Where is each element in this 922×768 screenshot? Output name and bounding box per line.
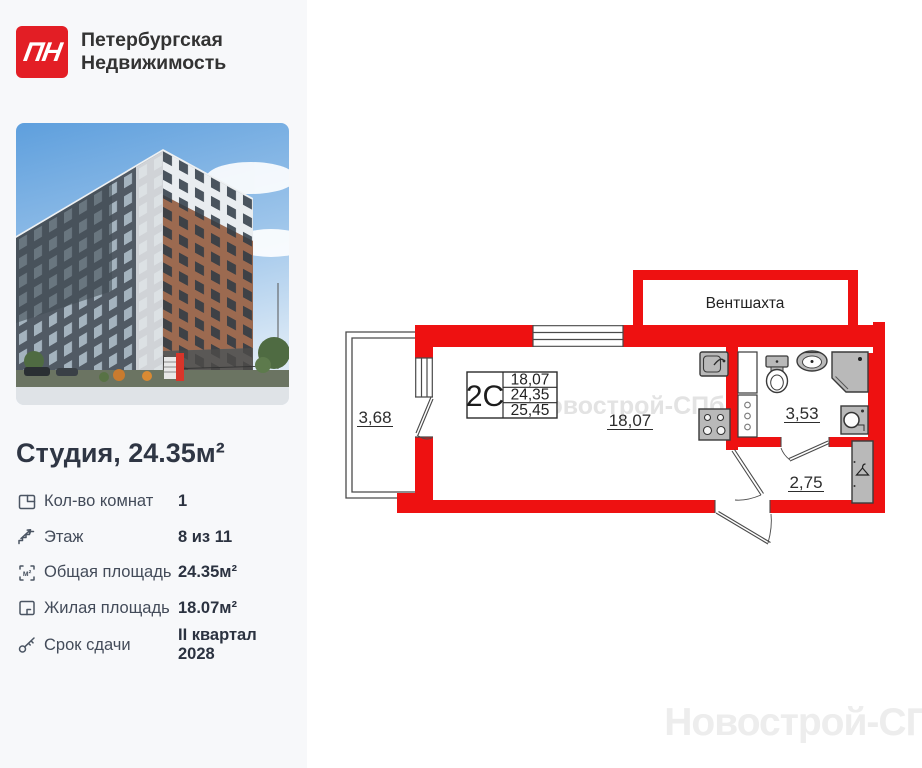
wardrobe-fixture bbox=[852, 441, 873, 503]
shower-fixture bbox=[832, 352, 868, 392]
brand-name-line1: Петербургская bbox=[81, 29, 226, 52]
spec-row-floor: Этаж 8 из 11 bbox=[16, 520, 294, 556]
brand-logo[interactable]: ПН Петербургская Недвижимость bbox=[16, 26, 226, 78]
spec-list: Кол-во комнат 1 Этаж 8 из 11 м² Общая пл… bbox=[16, 484, 294, 662]
listing-title: Студия, 24.35м² bbox=[16, 438, 225, 469]
unit-code: 2С bbox=[466, 380, 504, 413]
bathroom-door bbox=[781, 437, 829, 461]
spec-label: Общая площадь bbox=[44, 563, 178, 582]
spec-label: Этаж bbox=[44, 528, 178, 547]
toilet-fixture bbox=[766, 356, 788, 393]
spec-value: 18.07м² bbox=[178, 599, 294, 618]
spec-label: Кол-во комнат bbox=[44, 492, 178, 511]
spec-row-total-area: м² Общая площадь 24.35м² bbox=[16, 555, 294, 591]
handover-key-icon bbox=[16, 634, 38, 656]
floor-icon bbox=[16, 526, 38, 548]
building-illustration bbox=[16, 123, 289, 405]
brand-name-line2: Недвижимость bbox=[81, 52, 226, 75]
kitchen-sink-fixture bbox=[700, 352, 728, 376]
brand-name: Петербургская Недвижимость bbox=[81, 29, 226, 75]
window-top bbox=[533, 325, 623, 347]
spec-row-rooms: Кол-во комнат 1 bbox=[16, 484, 294, 520]
stat-full-area: 25,45 bbox=[511, 402, 550, 419]
living-area-label: 18,07 bbox=[609, 411, 652, 430]
unit-stat-table: 2С 18,07 24,35 25,45 bbox=[466, 372, 557, 420]
duct-shaft bbox=[738, 352, 757, 437]
spec-value: II квартал 2028 bbox=[178, 626, 294, 664]
spec-row-handover: Срок сдачи II квартал 2028 bbox=[16, 626, 294, 662]
stove-fixture bbox=[699, 409, 730, 440]
spec-label: Срок сдачи bbox=[44, 636, 178, 655]
total-area-icon: м² bbox=[16, 562, 38, 584]
washbasin-fixture bbox=[797, 351, 827, 371]
balcony-door bbox=[416, 397, 433, 439]
washing-machine-fixture bbox=[841, 406, 868, 434]
spec-value: 8 из 11 bbox=[178, 528, 294, 547]
room-count-icon bbox=[16, 491, 38, 513]
balcony-area-label: 3,68 bbox=[358, 408, 391, 427]
spec-label: Жилая площадь bbox=[44, 599, 178, 618]
living-area-icon bbox=[16, 597, 38, 619]
spec-row-living-area: Жилая площадь 18.07м² bbox=[16, 591, 294, 627]
hallway-door bbox=[732, 450, 764, 501]
watermark-bottom: Новострой-СПб bbox=[664, 701, 922, 744]
sidebar: ПН Петербургская Недвижимость bbox=[0, 0, 307, 768]
entrance-door bbox=[715, 500, 771, 544]
bathroom-area-label: 3,53 bbox=[785, 404, 818, 423]
brand-logo-mark: ПН bbox=[16, 26, 68, 78]
floor-plan: Новострой-СПб bbox=[307, 0, 922, 768]
vent-shaft-label: Вентшахта bbox=[706, 295, 785, 312]
building-render-image bbox=[16, 123, 289, 405]
spec-value: 24.35м² bbox=[178, 563, 294, 582]
hallway-area-label: 2,75 bbox=[789, 473, 822, 492]
brand-monogram: ПН bbox=[21, 37, 63, 68]
spec-value: 1 bbox=[178, 492, 294, 511]
svg-text:м²: м² bbox=[23, 569, 32, 578]
